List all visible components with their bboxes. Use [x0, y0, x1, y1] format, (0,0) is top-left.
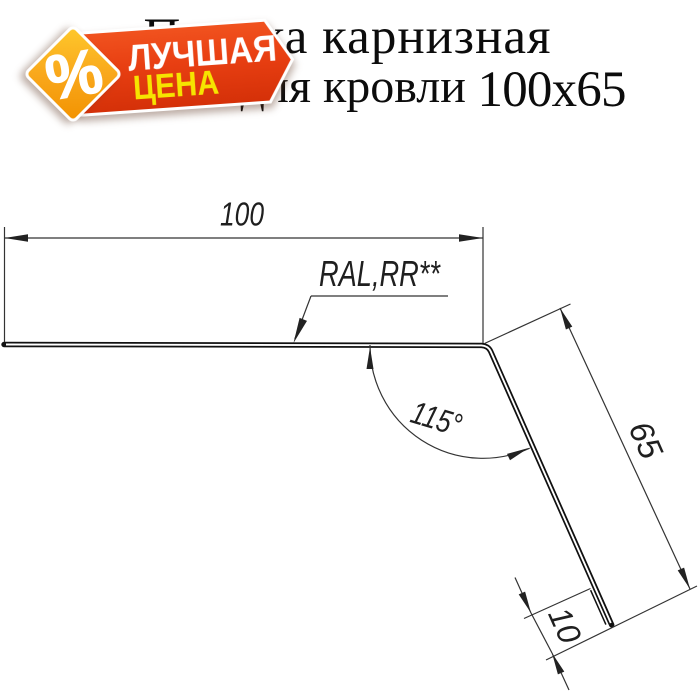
- svg-text:100: 100: [220, 196, 265, 233]
- svg-text:%: %: [41, 36, 108, 115]
- svg-text:ЦЕНА: ЦЕНА: [132, 64, 220, 108]
- svg-text:100х65: 100х65: [478, 62, 627, 118]
- svg-text:RAL,RR**: RAL,RR**: [319, 253, 441, 294]
